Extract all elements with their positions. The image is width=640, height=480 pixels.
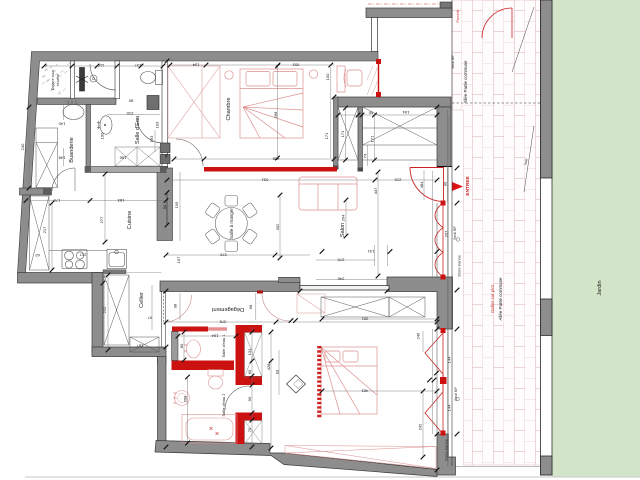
svg-text:268: 268 bbox=[183, 395, 188, 402]
svg-text:103: 103 bbox=[155, 121, 160, 128]
svg-text:270: 270 bbox=[337, 258, 344, 263]
svg-text:212: 212 bbox=[102, 306, 107, 313]
svg-text:277: 277 bbox=[99, 216, 104, 223]
svg-text:195: 195 bbox=[174, 201, 179, 208]
svg-text:428: 428 bbox=[266, 363, 271, 370]
svg-text:171: 171 bbox=[324, 132, 329, 139]
svg-text:93: 93 bbox=[275, 369, 280, 374]
svg-text:953: 953 bbox=[292, 63, 299, 68]
svg-text:186: 186 bbox=[119, 156, 126, 161]
svg-text:98: 98 bbox=[173, 303, 178, 308]
svg-text:Seuil BP: Seuil BP bbox=[453, 226, 457, 240]
svg-text:242: 242 bbox=[418, 423, 423, 430]
svg-text:187: 187 bbox=[136, 344, 143, 349]
svg-text:Seuil BP: Seuil BP bbox=[451, 55, 455, 69]
svg-text:240: 240 bbox=[20, 143, 25, 150]
svg-text:Salle d'eau 1: Salle d'eau 1 bbox=[221, 334, 226, 358]
svg-text:80: 80 bbox=[179, 343, 184, 348]
svg-text:217: 217 bbox=[79, 253, 86, 258]
svg-text:Store-banne: Store-banne bbox=[444, 438, 449, 461]
svg-text:80: 80 bbox=[128, 99, 133, 104]
svg-text:Salle d'Eau: Salle d'Eau bbox=[135, 116, 141, 144]
svg-text:298: 298 bbox=[273, 111, 278, 118]
svg-text:Buanderie: Buanderie bbox=[69, 137, 75, 163]
svg-text:190: 190 bbox=[100, 132, 105, 139]
svg-text:447: 447 bbox=[373, 187, 378, 194]
svg-text:Parcelle: Parcelle bbox=[456, 10, 460, 23]
svg-text:escalier: escalier bbox=[56, 73, 60, 86]
svg-text:97: 97 bbox=[147, 316, 152, 321]
svg-text:375: 375 bbox=[219, 253, 226, 258]
svg-text:183: 183 bbox=[117, 198, 124, 203]
svg-text:210: 210 bbox=[126, 111, 133, 116]
svg-text:Jardin: Jardin bbox=[597, 280, 603, 295]
svg-text:Salle d'eau 2: Salle d'eau 2 bbox=[221, 393, 226, 417]
svg-text:148: 148 bbox=[58, 156, 65, 161]
svg-text:Espace sous: Espace sous bbox=[51, 70, 55, 91]
svg-text:98: 98 bbox=[248, 304, 253, 309]
svg-text:144: 144 bbox=[446, 404, 451, 411]
svg-text:70: 70 bbox=[247, 427, 252, 432]
svg-text:246: 246 bbox=[337, 277, 344, 282]
svg-text:171: 171 bbox=[340, 130, 345, 137]
svg-text:90: 90 bbox=[247, 396, 252, 401]
svg-text:60: 60 bbox=[368, 111, 373, 116]
svg-text:144: 144 bbox=[446, 356, 451, 363]
svg-text:215: 215 bbox=[394, 178, 401, 183]
svg-text:264: 264 bbox=[341, 214, 346, 221]
svg-text:Store-banne: Store-banne bbox=[457, 254, 462, 277]
svg-text:74: 74 bbox=[363, 153, 368, 158]
svg-text:Dalles sur plot: Dalles sur plot bbox=[490, 284, 495, 313]
svg-text:391: 391 bbox=[361, 317, 368, 322]
svg-text:Salle à manger: Salle à manger bbox=[229, 208, 234, 239]
svg-text:ENTREE: ENTREE bbox=[465, 175, 471, 195]
svg-text:Allée Partie commune: Allée Partie commune bbox=[463, 60, 468, 104]
svg-text:62: 62 bbox=[35, 253, 40, 258]
svg-text:378: 378 bbox=[219, 320, 226, 325]
svg-text:131: 131 bbox=[247, 348, 252, 355]
svg-text:Chambre: Chambre bbox=[226, 97, 232, 120]
svg-text:90: 90 bbox=[443, 181, 448, 186]
svg-text:100: 100 bbox=[325, 73, 330, 80]
svg-text:Allée Partie commune: Allée Partie commune bbox=[498, 277, 503, 321]
svg-text:531: 531 bbox=[261, 178, 268, 183]
svg-text:107: 107 bbox=[176, 256, 181, 263]
svg-text:164: 164 bbox=[211, 334, 218, 339]
svg-text:134: 134 bbox=[192, 63, 199, 68]
svg-text:403: 403 bbox=[361, 389, 368, 394]
svg-text:207: 207 bbox=[443, 230, 448, 237]
svg-text:48: 48 bbox=[164, 153, 169, 158]
svg-text:217: 217 bbox=[42, 226, 47, 233]
svg-text:484: 484 bbox=[419, 181, 424, 188]
svg-text:302: 302 bbox=[275, 223, 280, 230]
svg-text:131: 131 bbox=[367, 249, 374, 254]
svg-text:Cuisine: Cuisine bbox=[127, 211, 133, 230]
svg-text:171: 171 bbox=[370, 135, 375, 142]
svg-text:90: 90 bbox=[162, 204, 167, 209]
svg-text:140: 140 bbox=[58, 122, 65, 127]
svg-text:163: 163 bbox=[149, 135, 154, 142]
svg-text:Cellier: Cellier bbox=[139, 292, 145, 308]
svg-text:60: 60 bbox=[247, 369, 252, 374]
svg-text:246: 246 bbox=[416, 332, 421, 339]
svg-text:Seuil BP: Seuil BP bbox=[454, 387, 458, 401]
svg-text:154: 154 bbox=[402, 110, 409, 115]
svg-text:Salon: Salon bbox=[340, 223, 346, 237]
svg-text:Dégagement: Dégagement bbox=[212, 306, 244, 312]
